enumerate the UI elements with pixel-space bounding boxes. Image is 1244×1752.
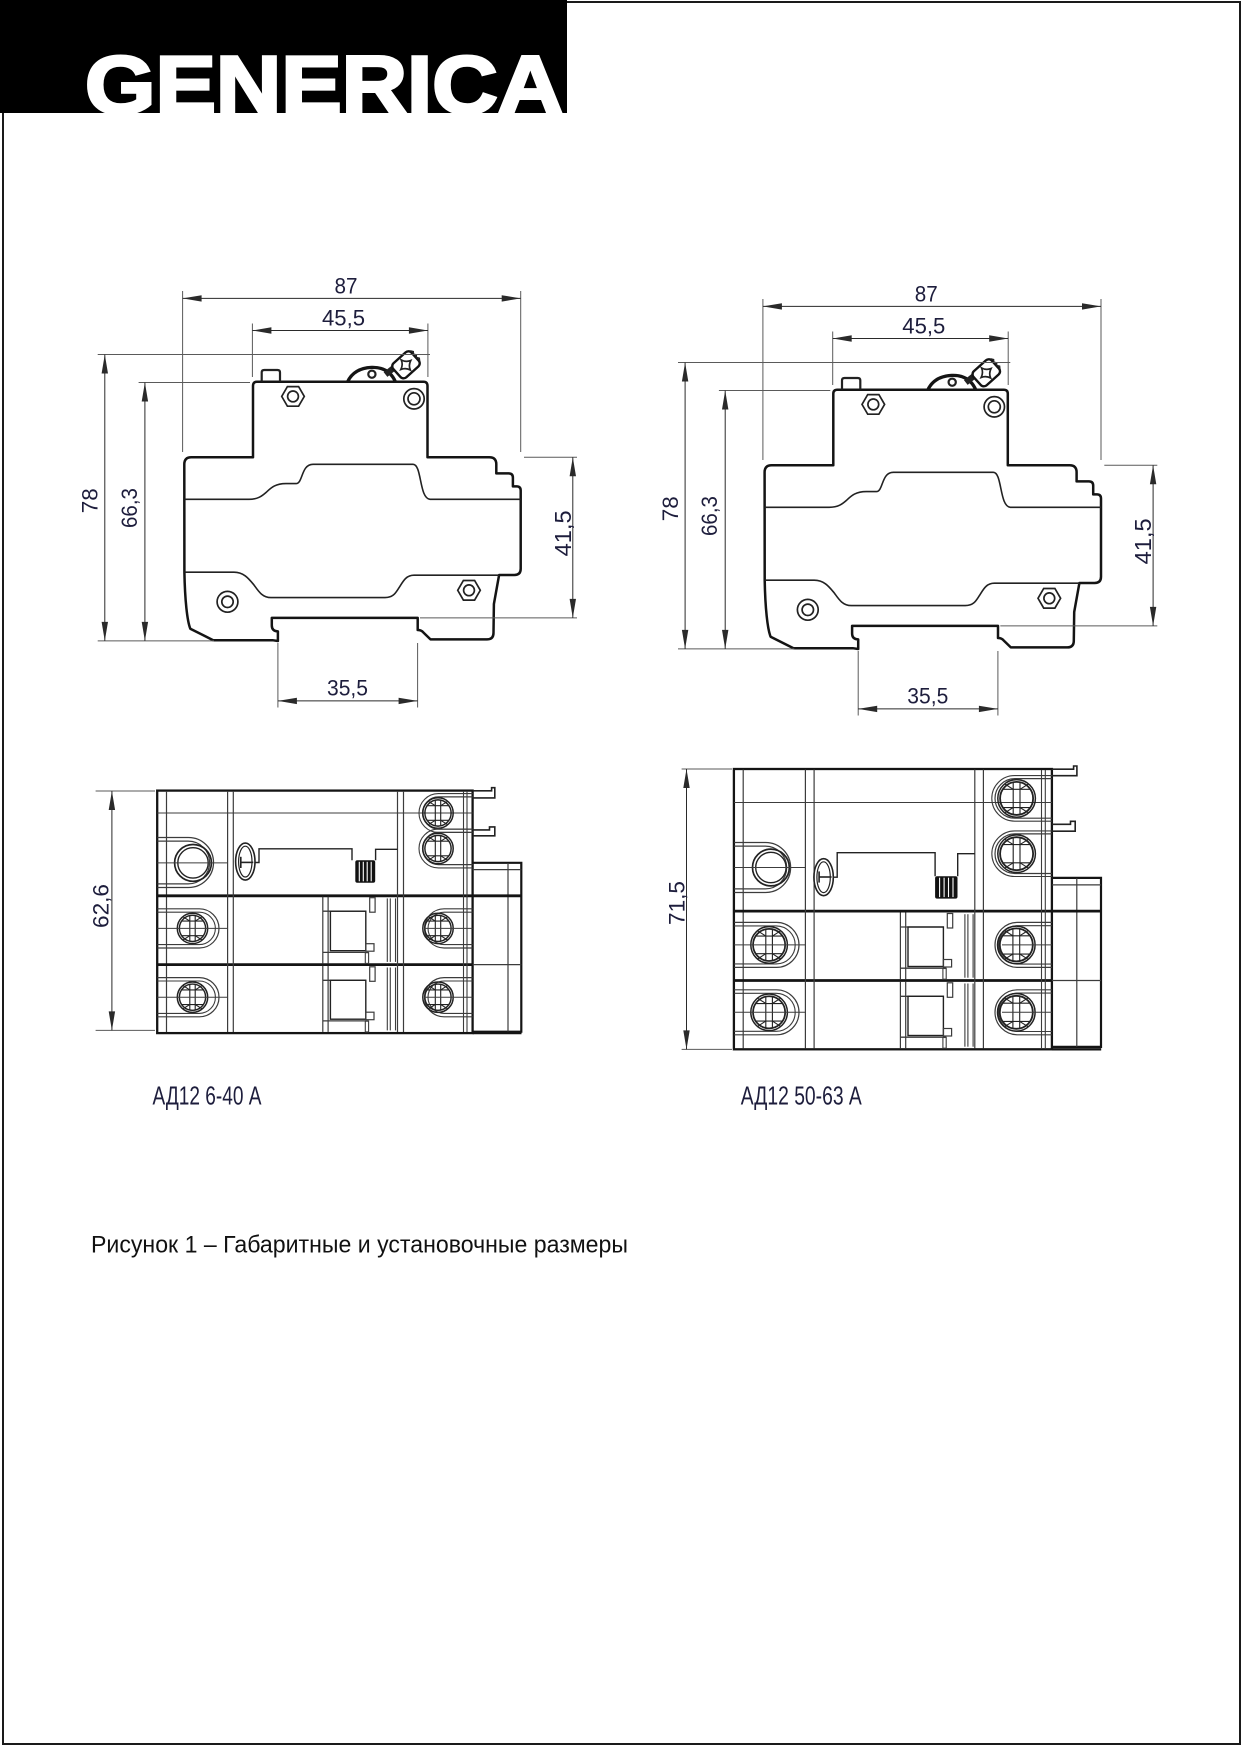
svg-text:41,5: 41,5 [550, 510, 576, 556]
svg-text:66,3: 66,3 [697, 496, 722, 536]
svg-text:35,5: 35,5 [907, 684, 948, 709]
svg-text:АД12 50-63 А: АД12 50-63 А [741, 1081, 862, 1111]
svg-text:35,5: 35,5 [327, 676, 368, 701]
svg-text:87: 87 [915, 282, 938, 307]
svg-text:78: 78 [78, 488, 103, 513]
svg-text:41,5: 41,5 [1130, 518, 1156, 564]
svg-text:62,6: 62,6 [89, 884, 114, 928]
svg-text:Рисунок 1 – Габаритные и устан: Рисунок 1 – Габаритные и установочные ра… [91, 1232, 628, 1259]
svg-text:71,5: 71,5 [664, 881, 689, 925]
svg-text:АД12 6-40 А: АД12 6-40 А [153, 1081, 262, 1111]
svg-text:66,3: 66,3 [117, 488, 142, 528]
svg-text:78: 78 [658, 496, 683, 521]
svg-text:45,5: 45,5 [902, 314, 945, 339]
svg-text:45,5: 45,5 [322, 306, 365, 331]
svg-text:87: 87 [335, 274, 358, 299]
